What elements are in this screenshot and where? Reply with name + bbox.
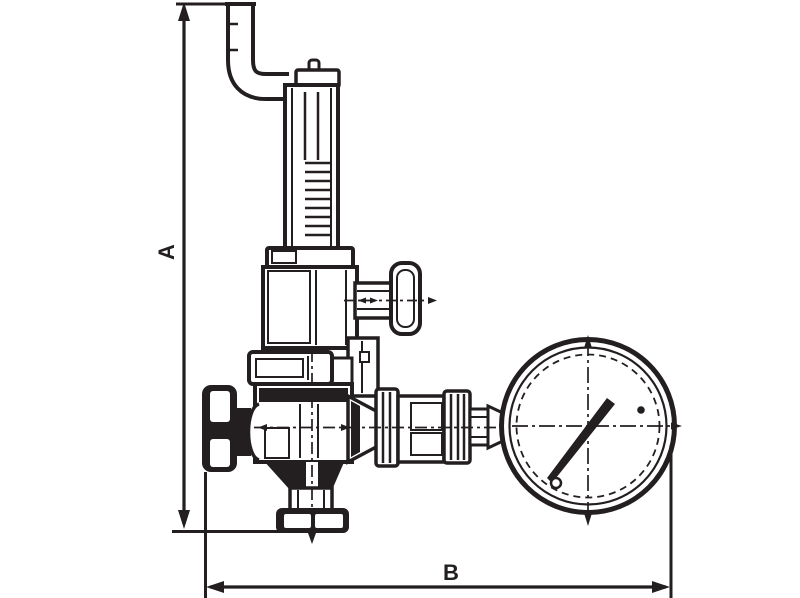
right-arrowhead (652, 581, 670, 593)
dial-dot (637, 406, 645, 414)
pressure-gauge (502, 335, 683, 526)
down-arrowhead (178, 510, 190, 529)
down-arrowhead (584, 513, 592, 526)
vent-pipe-elbow (225, 4, 289, 87)
seat-detail (265, 428, 289, 458)
body-left-bulge (249, 404, 260, 460)
inlet-union-cap (202, 385, 251, 472)
needle-tail-ring (551, 478, 561, 488)
dimension-a-label: A (154, 244, 179, 260)
spring-housing (285, 60, 339, 250)
outlet-neck (290, 488, 332, 510)
bonnet-flange (267, 248, 353, 267)
bonnet (263, 267, 357, 348)
handle-knob (391, 263, 420, 334)
body-top-flange (249, 352, 352, 384)
centerline-arrowhead (428, 297, 437, 304)
bottom-outlet-flange (263, 460, 349, 533)
dimension-b-label: B (443, 560, 459, 585)
valve-drawing: A B (0, 0, 800, 598)
body-shoulder (259, 388, 348, 402)
down-arrowhead (308, 533, 316, 544)
technical-drawing-canvas: A B (0, 0, 800, 598)
left-arrowhead (206, 581, 224, 593)
outlet-taper (263, 460, 345, 490)
